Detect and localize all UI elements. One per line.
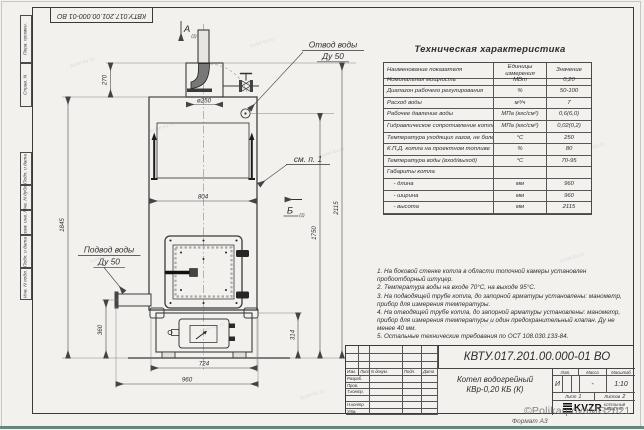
rev-header-data: Дата bbox=[422, 369, 438, 376]
spec-cell: °С bbox=[494, 133, 547, 145]
drawing-sheet: kotel-kv.ru kotel-kv.ru kotel-kv.ru kote… bbox=[0, 0, 644, 430]
sig-cell bbox=[370, 409, 403, 416]
rev-cell bbox=[370, 346, 403, 354]
rev-cell bbox=[422, 346, 438, 354]
sheets-label: Листов bbox=[604, 394, 620, 399]
foot-right bbox=[233, 352, 246, 358]
rev-cell bbox=[403, 362, 422, 369]
dimension-lines bbox=[68, 63, 342, 384]
rev-cell bbox=[403, 354, 422, 362]
spec-cell: Температура воды (вход/выход) bbox=[384, 156, 494, 168]
title-block: КВТУ.017.201.00.000-01 ВО Изм. Лист N до… bbox=[345, 345, 634, 414]
bottom-edge-artifact bbox=[0, 426, 644, 429]
spec-table: Наименование показателя Единицы измерени… bbox=[383, 62, 592, 215]
spec-cell: 2115 bbox=[547, 202, 591, 214]
ash-hinge-top bbox=[229, 324, 235, 329]
sheet-cell: Лист1 bbox=[553, 393, 595, 401]
rev-cell bbox=[346, 362, 359, 369]
spec-cell: 50-100 bbox=[547, 86, 591, 98]
outlet-port-dot bbox=[244, 112, 246, 114]
spec-cell: 250 bbox=[547, 133, 591, 145]
outlet-leader bbox=[250, 52, 304, 110]
spec-cell: Гидравлическое сопротивление котла bbox=[384, 121, 494, 133]
sig-cell bbox=[403, 409, 422, 416]
spec-cell: МПа (кгс/см²) bbox=[494, 109, 547, 121]
side-pin-left bbox=[151, 140, 158, 179]
dim-804: 804 bbox=[198, 193, 209, 200]
rev-cell bbox=[359, 362, 370, 369]
lit-divider bbox=[571, 376, 572, 393]
doc-number: КВТУ.017.201.00.000-01 ВО bbox=[438, 346, 635, 369]
rev-header-list: Лист bbox=[359, 369, 370, 376]
dim-724: 724 bbox=[199, 361, 210, 368]
spec-cell: Расход воды bbox=[384, 98, 494, 110]
spec-cell: - длина bbox=[384, 179, 494, 191]
copyright-watermark: ©PolikarpovaMG2021 bbox=[524, 405, 630, 417]
scale-value: 1:10 bbox=[607, 376, 635, 393]
dim-270: 270 bbox=[102, 74, 109, 86]
note-4: 4. На отводящей трубе котла, до запорной… bbox=[377, 309, 630, 334]
technical-notes: 1. На боковой стенке котла в области топ… bbox=[377, 268, 630, 342]
spec-cell: °С bbox=[494, 156, 547, 168]
rev-cell bbox=[422, 362, 438, 369]
door-hinge-bottom bbox=[236, 292, 249, 299]
sheets-cell: Листов2 bbox=[595, 393, 636, 401]
view-a-label: А bbox=[183, 24, 190, 35]
inlet-water-label: Подвод воды bbox=[84, 245, 134, 255]
upper-panel bbox=[157, 123, 249, 178]
spec-cell: мм bbox=[494, 179, 547, 191]
note-5: 5. Остальные технические требования по О… bbox=[377, 333, 630, 341]
rev-cell bbox=[346, 346, 359, 354]
sig-row-utv: Утв. bbox=[346, 409, 370, 416]
smoke-elbow bbox=[191, 64, 210, 89]
sheet-number: 1 bbox=[578, 394, 581, 400]
sheets-number: 2 bbox=[622, 394, 625, 400]
mass-value: - bbox=[579, 376, 607, 393]
spec-cell: Температура уходящих газов, не более bbox=[384, 133, 494, 145]
spec-cell: % bbox=[494, 144, 547, 156]
note-2: 2. Температура воды на входе 70°С, на вы… bbox=[377, 284, 630, 292]
spec-cell: 70-95 bbox=[547, 156, 591, 168]
rev-header-docnum: N докум. bbox=[370, 369, 403, 376]
spec-cell: 0,6(6,0) bbox=[547, 109, 591, 121]
lit-divider bbox=[562, 376, 563, 393]
rev-header-podp: Подп. bbox=[403, 369, 422, 376]
spec-cell: мм bbox=[494, 202, 547, 214]
spec-cell: 80 bbox=[547, 144, 591, 156]
spec-cell: 0,02(0,2) bbox=[547, 121, 591, 133]
view-a-sub: (2) bbox=[191, 34, 197, 39]
foot-left bbox=[162, 352, 175, 358]
ash-hinge-bottom bbox=[229, 337, 235, 342]
rev-cell bbox=[359, 354, 370, 362]
dim-1845: 1845 bbox=[59, 218, 66, 232]
spec-cell: Рабочее давление воды bbox=[384, 109, 494, 121]
spec-cell bbox=[494, 167, 547, 179]
rev-cell bbox=[422, 354, 438, 362]
dim-1750: 1750 bbox=[311, 226, 318, 240]
inlet-leader bbox=[104, 268, 124, 293]
sheet-label: Лист bbox=[565, 394, 576, 399]
side-pin-right bbox=[249, 140, 256, 179]
see-note-label: см. п. 1 bbox=[294, 154, 322, 164]
side-pin-left-tip bbox=[152, 133, 157, 141]
spec-cell: м³/ч bbox=[494, 98, 547, 110]
dim-360: 360 bbox=[97, 324, 104, 335]
sig-cell bbox=[422, 409, 438, 416]
rev-cell bbox=[359, 346, 370, 354]
product-name-line1: Котел водогрейный bbox=[438, 375, 552, 385]
spec-cell: К.П.Д. котла на проектном топливе bbox=[384, 144, 494, 156]
dim-314: 314 bbox=[290, 329, 297, 340]
door-handle-mount bbox=[190, 269, 198, 277]
spec-cell: мм bbox=[494, 191, 547, 203]
dim-960: 960 bbox=[182, 377, 193, 384]
view-b-sub: (2) bbox=[299, 213, 305, 218]
outlet-water-label: Отвод воды bbox=[309, 40, 357, 50]
outlet-water-dn: Ду 50 bbox=[321, 51, 344, 61]
ash-latch bbox=[172, 330, 180, 336]
door-hinge-top bbox=[236, 250, 249, 257]
side-pin-right-tip bbox=[249, 133, 254, 141]
elbow-plate bbox=[187, 89, 212, 93]
lit-header: Лит. bbox=[553, 369, 579, 376]
spec-cell: % bbox=[494, 86, 547, 98]
note-1: 1. На боковой стенке котла в области топ… bbox=[377, 268, 630, 284]
inlet-pipe bbox=[118, 294, 151, 306]
note-3: 3. На подводящей трубе котла, до запорно… bbox=[377, 293, 630, 309]
mass-header: Масса bbox=[579, 369, 607, 376]
product-name-line2: КВр-0,20 КБ (К) bbox=[438, 385, 552, 395]
spec-cell: 0,20 bbox=[547, 75, 591, 87]
inlet-water-dn: Ду 50 bbox=[97, 257, 120, 267]
spec-cell: МВт bbox=[494, 75, 547, 87]
rev-cell bbox=[403, 346, 422, 354]
spec-cell: - ширина bbox=[384, 191, 494, 203]
rev-header-izm: Изм. bbox=[346, 369, 359, 376]
dim-250: ø250 bbox=[197, 98, 212, 105]
spec-cell: - высота bbox=[384, 202, 494, 214]
spec-cell: Габариты котла bbox=[384, 167, 494, 179]
dim-2115: 2115 bbox=[333, 201, 340, 216]
spec-cell bbox=[547, 167, 591, 179]
format-label: Формат А3 bbox=[512, 418, 548, 425]
sheet-count-row: Лист1 Листов2 bbox=[553, 393, 635, 401]
scale-header: Масштаб bbox=[607, 369, 635, 376]
lit-value: И bbox=[553, 376, 579, 393]
revision-grid: Изм. Лист N докум. Подп. Дата Разраб. Пр… bbox=[346, 346, 438, 415]
rev-cell bbox=[370, 362, 403, 369]
rev-cell bbox=[370, 354, 403, 362]
spec-cell: 960 bbox=[547, 191, 591, 203]
spec-cell: 960 bbox=[547, 179, 591, 191]
spec-cell: МПа (кгс/см²) bbox=[494, 121, 547, 133]
view-b-label: Б bbox=[287, 206, 293, 217]
rev-cell bbox=[346, 354, 359, 362]
spec-table-title: Техническая характеристика bbox=[400, 44, 580, 55]
see-note-leader bbox=[259, 165, 287, 186]
lit-letter: И bbox=[553, 381, 562, 388]
spec-cell: Номинальная мощность bbox=[384, 75, 494, 87]
spec-cell: Диапазон рабочего регулирования bbox=[384, 86, 494, 98]
spec-cell: 7 bbox=[547, 98, 591, 110]
chimney-pipe bbox=[198, 30, 209, 63]
valve-body bbox=[242, 81, 251, 92]
